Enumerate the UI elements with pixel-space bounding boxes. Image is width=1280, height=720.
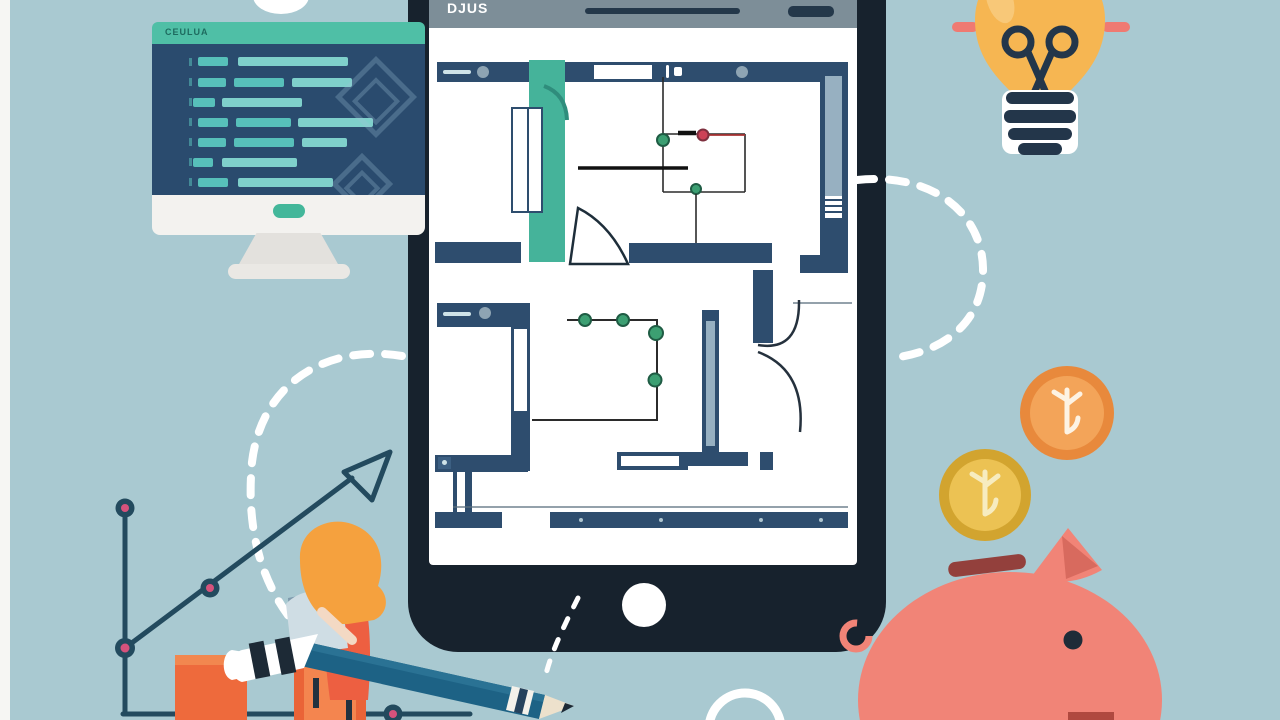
pig-eye xyxy=(1064,631,1083,650)
person-hair xyxy=(300,522,386,624)
left-edge-strip xyxy=(0,0,10,720)
orange-box xyxy=(175,655,247,720)
pencil-band xyxy=(506,686,534,715)
pencil-tip xyxy=(539,695,574,719)
illustration-stage: DJUS xyxy=(0,0,1280,720)
trend-line xyxy=(125,478,352,648)
measure-point-green xyxy=(649,374,662,387)
door-arc-lower xyxy=(758,352,801,432)
monitor-titlebar: CEULUA xyxy=(152,22,425,44)
desktop-monitor: CEULUA xyxy=(152,22,425,279)
pig-ear xyxy=(1032,528,1102,582)
measure-point-green xyxy=(617,314,629,326)
dashed-curve-left xyxy=(251,354,402,644)
tablet-screen: DJUS xyxy=(429,0,857,565)
piggy-bank-icon xyxy=(843,528,1162,720)
measure-point-green xyxy=(649,326,663,340)
monitor-screen xyxy=(152,44,425,195)
red-dash-left xyxy=(952,22,978,32)
measure-point-green xyxy=(579,314,591,326)
pig-snout xyxy=(1106,628,1138,686)
person-face xyxy=(305,552,333,606)
laptop-panel xyxy=(288,592,322,658)
monitor-base xyxy=(228,264,350,279)
measure-point-green xyxy=(657,134,669,146)
pig-leg-shadow xyxy=(1068,712,1114,720)
pig-body xyxy=(858,572,1162,720)
person-arm xyxy=(322,612,352,640)
pig-ear-inner xyxy=(1062,536,1098,579)
shoe xyxy=(224,650,246,680)
light-bulb-icon xyxy=(952,0,1130,155)
white-ring xyxy=(709,693,781,720)
coin-slot xyxy=(947,553,1026,577)
chair-back xyxy=(324,585,370,700)
tablet-device: DJUS xyxy=(408,0,886,652)
door-leaf-icon xyxy=(570,208,628,264)
pencil-lead xyxy=(561,703,574,713)
chart-points xyxy=(115,499,403,720)
monitor-stand xyxy=(239,233,339,265)
door-arc-upper xyxy=(758,300,799,346)
monitor-bezel xyxy=(152,195,425,235)
monitor-titlebar-text: CEULUA xyxy=(165,27,209,37)
person-body xyxy=(286,591,348,656)
monitor-back-circle xyxy=(253,0,309,14)
orange-box-back xyxy=(294,632,366,720)
striped-legs xyxy=(232,634,319,682)
home-button xyxy=(622,583,666,627)
chair-leg xyxy=(346,688,352,720)
floor-plan-annotations xyxy=(429,0,857,565)
coin-orange-icon xyxy=(1020,366,1114,460)
cube-icon-small xyxy=(331,153,393,195)
power-button xyxy=(273,204,305,218)
coin-gold-icon xyxy=(939,449,1031,541)
measure-point-red xyxy=(698,130,709,141)
chair-leg xyxy=(313,678,319,708)
arrowhead-icon xyxy=(344,452,390,500)
measure-point-green xyxy=(691,184,701,194)
red-dash-right xyxy=(1102,22,1130,32)
